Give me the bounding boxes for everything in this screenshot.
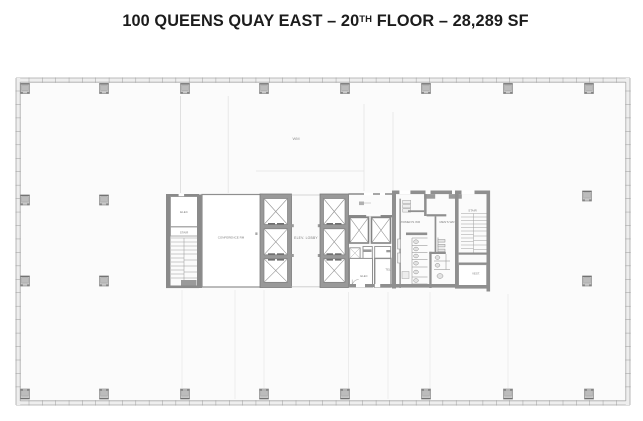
svg-text:ELEV. LOBBY: ELEV. LOBBY	[294, 236, 318, 240]
svg-text:VEST.: VEST.	[472, 272, 480, 276]
svg-text:CONFERENCE RM: CONFERENCE RM	[218, 236, 245, 240]
svg-text:STAIR: STAIR	[180, 231, 189, 235]
svg-text:ELEC: ELEC	[360, 274, 367, 278]
svg-text:TEL: TEL	[385, 268, 391, 272]
svg-text:WM: WM	[292, 136, 299, 141]
svg-text:ELEC: ELEC	[180, 210, 189, 214]
svg-text:WOMEN'S WR: WOMEN'S WR	[400, 220, 421, 224]
svg-text:STAIR: STAIR	[468, 209, 477, 213]
svg-text:MEN'S WR: MEN'S WR	[439, 220, 455, 224]
